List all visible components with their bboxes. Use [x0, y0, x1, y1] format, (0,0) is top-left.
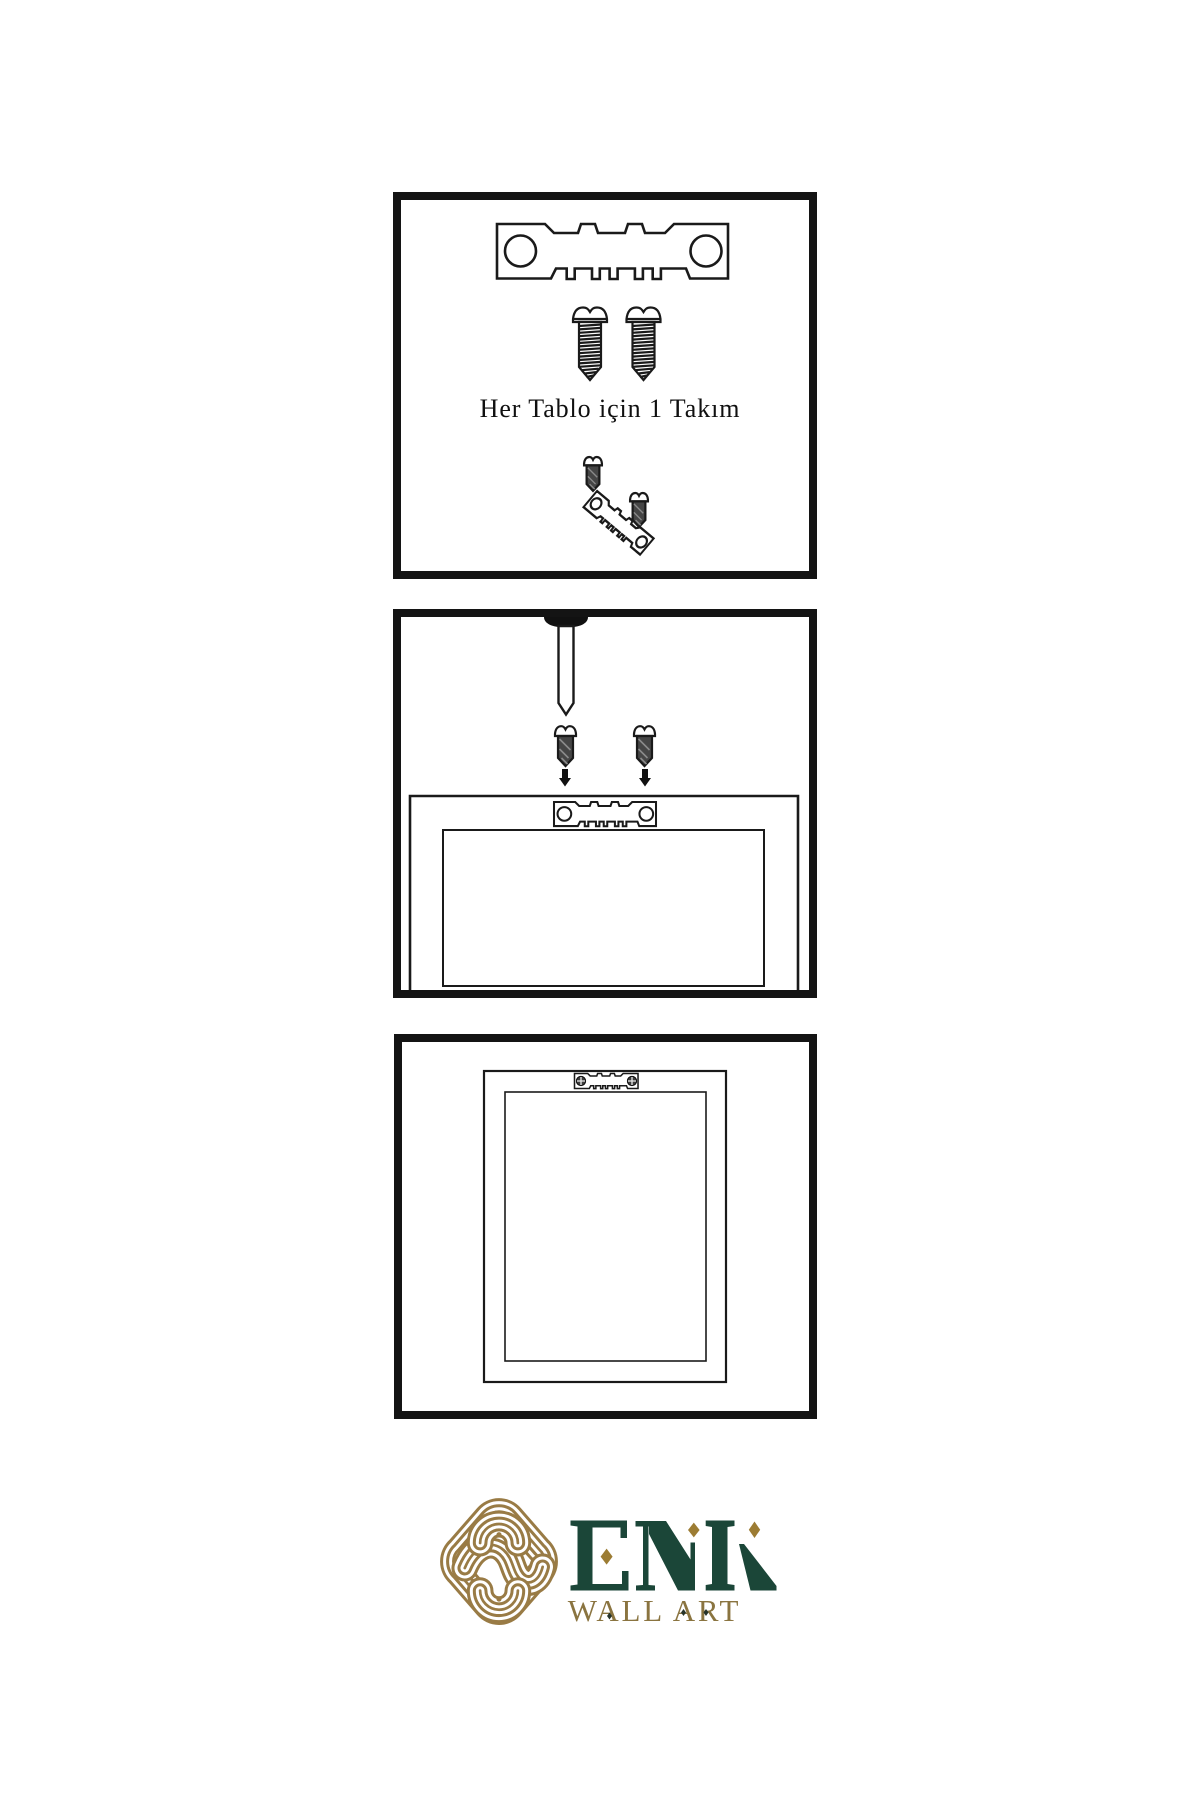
svg-text:Her Tablo için 1 Takım: Her Tablo için 1 Takım	[480, 394, 741, 423]
svg-text:WALL ART: WALL ART	[568, 1593, 742, 1628]
